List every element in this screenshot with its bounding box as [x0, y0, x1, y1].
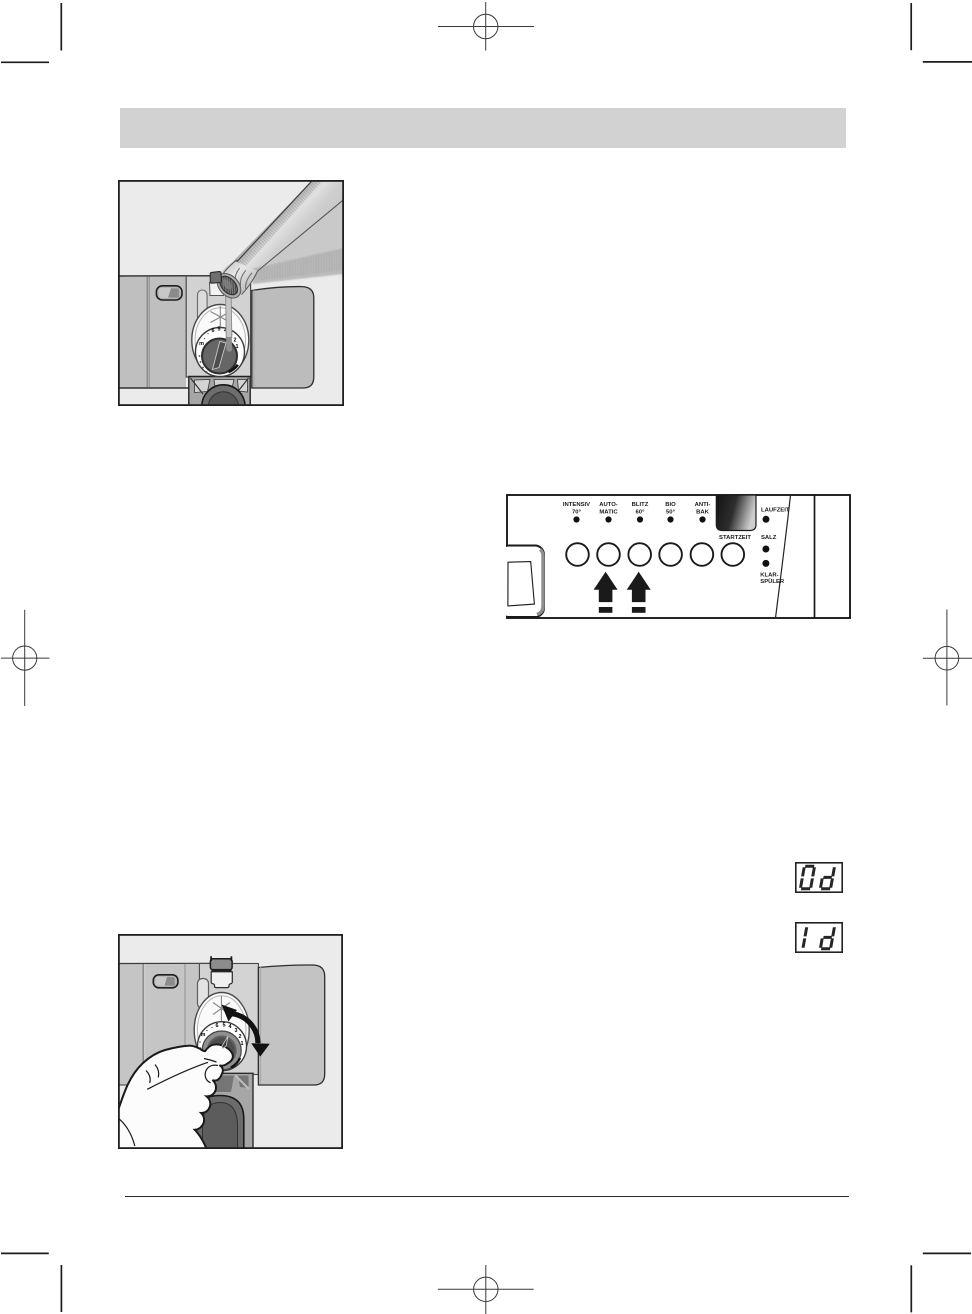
svg-text:-: -	[211, 1025, 213, 1031]
svg-text:BLITZ: BLITZ	[632, 502, 649, 508]
svg-text:6: 6	[216, 1023, 219, 1029]
svg-text:m: m	[199, 341, 204, 347]
svg-text:KLAR-: KLAR-	[760, 573, 778, 579]
svg-text:4: 4	[229, 1024, 232, 1030]
svg-text:STARTZEIT: STARTZEIT	[719, 535, 751, 541]
svg-text:3: 3	[235, 1028, 238, 1034]
svg-text:BIO: BIO	[665, 502, 676, 508]
svg-text:AUTO-: AUTO-	[599, 502, 618, 508]
svg-text:m: m	[201, 1032, 206, 1038]
svg-text:-: -	[206, 1028, 208, 1034]
svg-text:BAK: BAK	[696, 509, 710, 515]
svg-text:70°: 70°	[572, 509, 582, 515]
svg-text:SPÜLER: SPÜLER	[760, 578, 785, 585]
svg-text:-: -	[204, 336, 206, 342]
svg-text:MATIC: MATIC	[599, 509, 618, 515]
svg-text:2: 2	[234, 338, 237, 344]
svg-text:6: 6	[212, 328, 215, 334]
svg-text:60°: 60°	[636, 509, 646, 515]
svg-text:LAUFZEIT: LAUFZEIT	[761, 507, 790, 513]
svg-text:ANTI-: ANTI-	[695, 502, 711, 508]
svg-text:-: -	[207, 331, 209, 337]
svg-text:SALZ: SALZ	[761, 535, 777, 541]
svg-text:50°: 50°	[666, 509, 676, 515]
svg-text:5: 5	[218, 327, 221, 333]
svg-text:2: 2	[239, 1034, 242, 1040]
svg-text:INTENSIV: INTENSIV	[563, 502, 590, 508]
svg-text:5: 5	[223, 1023, 226, 1029]
